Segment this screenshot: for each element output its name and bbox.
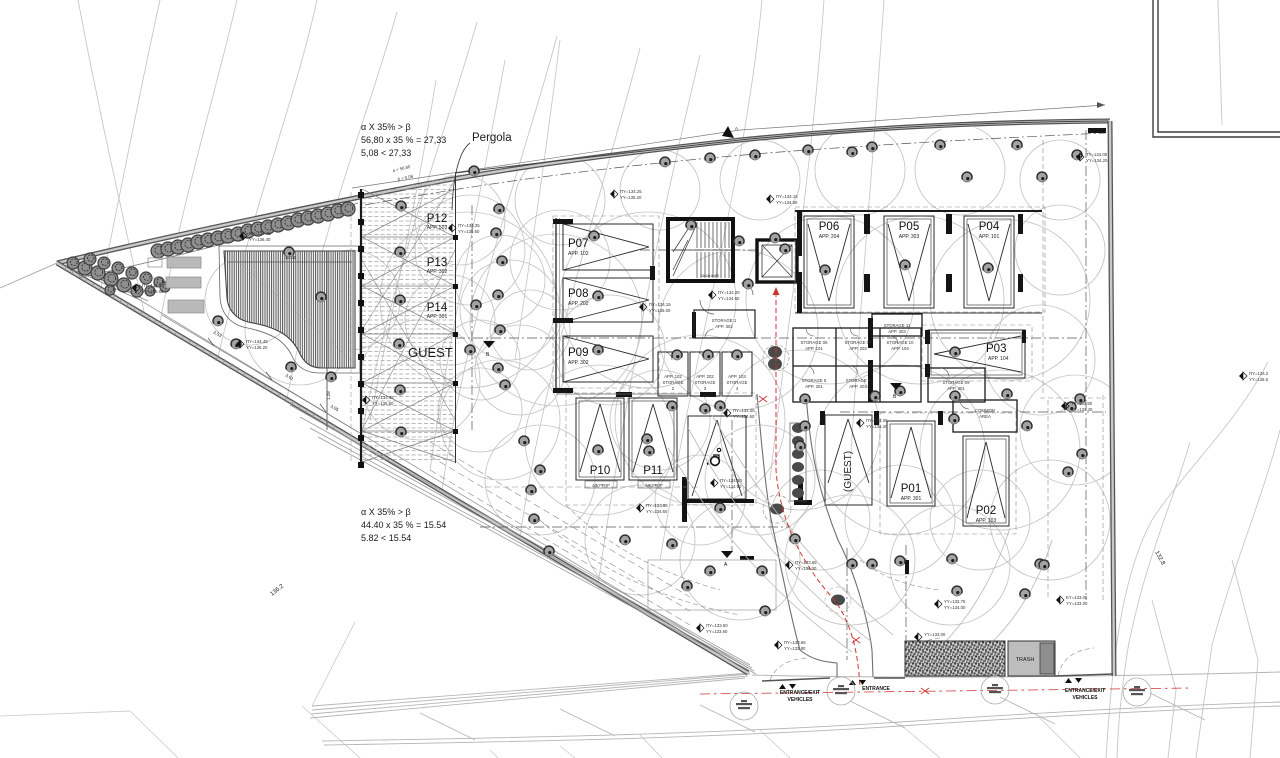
svg-text:ΥΥ=135.6: ΥΥ=135.6 <box>1249 377 1269 382</box>
svg-text:APP. 102: APP. 102 <box>664 374 682 379</box>
svg-text:ΥΥ=136.60: ΥΥ=136.60 <box>142 289 164 294</box>
svg-text:P10: P10 <box>590 465 610 477</box>
svg-text:ΠΥ=134.45: ΠΥ=134.45 <box>142 283 164 288</box>
svg-text:ΠΥ=134.25: ΠΥ=134.25 <box>620 189 642 194</box>
svg-text:APP. 303: APP. 303 <box>888 329 906 334</box>
svg-text:ΠΥ=134.20: ΠΥ=134.20 <box>718 290 740 295</box>
svg-text:ΠΥ=134.35: ΠΥ=134.35 <box>458 223 480 228</box>
svg-text:ΥΥ=134.50: ΥΥ=134.50 <box>720 484 742 489</box>
svg-text:P12: P12 <box>427 213 447 225</box>
svg-text:STORAGE 09: STORAGE 09 <box>943 380 971 385</box>
svg-text:ΥΥ=134.60: ΥΥ=134.60 <box>646 509 668 514</box>
svg-text:STORAGE: STORAGE <box>663 380 684 385</box>
svg-text:APP. 202: APP. 202 <box>568 301 589 307</box>
svg-text:APP. 302: APP. 302 <box>715 324 733 329</box>
svg-text:ΥΥ=133.60: ΥΥ=133.60 <box>706 629 728 634</box>
svg-text:ΠΥ=134.00: ΠΥ=134.00 <box>720 478 742 483</box>
svg-text:ΠΥ=134.15: ΠΥ=134.15 <box>776 194 798 199</box>
svg-text:APP. 201: APP. 201 <box>805 384 823 389</box>
svg-text:13x14x16x30: 13x14x16x30 <box>700 274 719 278</box>
svg-text:44.40 x 35 % = 15.54: 44.40 x 35 % = 15.54 <box>361 520 446 530</box>
svg-text:ΠΥ=134.05: ΠΥ=134.05 <box>866 418 888 423</box>
svg-text:ΠΥ=134.45: ΠΥ=134.45 <box>372 395 394 400</box>
svg-text:Pergola: Pergola <box>472 132 512 144</box>
svg-text:ΥΥ=134.20: ΥΥ=134.20 <box>866 424 888 429</box>
svg-text:ΥΥ=133.40: ΥΥ=133.40 <box>1071 407 1093 412</box>
svg-text:TRASH: TRASH <box>1016 657 1035 663</box>
svg-text:ΠΥ=134.45: ΠΥ=134.45 <box>246 339 268 344</box>
svg-text:STORAGE: STORAGE <box>695 380 716 385</box>
svg-text:APP. 104: APP. 104 <box>891 346 909 351</box>
svg-text:APP. 101: APP. 101 <box>805 346 823 351</box>
svg-text:APP. 302: APP. 302 <box>568 360 589 366</box>
svg-text:ΥΥ=135.00: ΥΥ=135.00 <box>649 308 671 313</box>
svg-text:P04: P04 <box>979 221 1000 233</box>
svg-text:P05: P05 <box>899 221 919 233</box>
svg-text:APP. 204: APP. 204 <box>819 234 840 240</box>
svg-text:STORAGE 1: STORAGE 1 <box>712 318 737 323</box>
svg-text:APP. 102: APP. 102 <box>568 251 589 257</box>
svg-text:APP. 202: APP. 202 <box>696 374 714 379</box>
svg-text:ΤΥ=134.05: ΤΥ=134.05 <box>1086 152 1108 157</box>
svg-text:P07: P07 <box>568 238 588 250</box>
svg-text:5.82 < 15.54: 5.82 < 15.54 <box>361 533 411 543</box>
svg-text:ΠΥ=134.05: ΠΥ=134.05 <box>733 408 755 413</box>
svg-text:STORAGE 06: STORAGE 06 <box>801 340 829 345</box>
svg-text:APP. 203: APP. 203 <box>849 346 867 351</box>
svg-text:ΥΥ=134.60: ΥΥ=134.60 <box>733 414 755 419</box>
svg-text:P01: P01 <box>901 483 921 495</box>
svg-text:ENTRANCE/EXIT: ENTRANCE/EXIT <box>1065 688 1105 694</box>
svg-text:APP. 503: APP. 503 <box>427 225 448 231</box>
svg-text:ΥΥ=133.80: ΥΥ=133.80 <box>784 646 806 651</box>
svg-text:ΥΥ=135.20: ΥΥ=135.20 <box>620 195 642 200</box>
svg-text:ΠΥ=134.45: ΠΥ=134.45 <box>249 231 271 236</box>
svg-text:APP. 103: APP. 103 <box>976 518 997 524</box>
svg-text:5,08 < 27,33: 5,08 < 27,33 <box>361 148 411 158</box>
svg-text:P14: P14 <box>427 302 448 314</box>
svg-text:ΥΥ=134.60: ΥΥ=134.60 <box>718 296 740 301</box>
svg-text:P08: P08 <box>568 288 588 300</box>
svg-text:P09: P09 <box>568 347 588 359</box>
svg-text:ΠΥ=134.2: ΠΥ=134.2 <box>1249 371 1269 376</box>
svg-text:56,80 x 35 % = 27,33: 56,80 x 35 % = 27,33 <box>361 135 446 145</box>
svg-text:ΠΥ=134.15: ΠΥ=134.15 <box>649 302 671 307</box>
svg-text:A: A <box>735 126 738 131</box>
svg-text:APP. 203: APP. 203 <box>849 384 867 389</box>
svg-text:P02: P02 <box>976 505 996 517</box>
svg-text:ΥΥ=133.75: ΥΥ=133.75 <box>944 599 966 604</box>
svg-text:α X 35% > β: α X 35% > β <box>361 122 411 132</box>
svg-text:ΥΥ=134.00: ΥΥ=134.00 <box>944 605 966 610</box>
svg-text:APP. 301: APP. 301 <box>947 386 965 391</box>
svg-text:P06: P06 <box>819 221 839 233</box>
svg-text:ΕΥ=133.05: ΕΥ=133.05 <box>1066 595 1088 600</box>
svg-text:ΤΥ=133.80: ΤΥ=133.80 <box>1071 401 1093 406</box>
svg-text:α X 35% > β: α X 35% > β <box>361 507 411 517</box>
svg-text:P13: P13 <box>427 257 447 269</box>
svg-text:P03: P03 <box>986 343 1006 355</box>
svg-text:APP. 302: APP. 302 <box>427 269 448 275</box>
svg-text:ΥΥ=136.20: ΥΥ=136.20 <box>246 345 268 350</box>
svg-text:ΥΥ=134.20: ΥΥ=134.20 <box>1086 158 1108 163</box>
svg-text:ENTRANCE: ENTRANCE <box>862 686 890 692</box>
svg-text:ΥΥ=133.00: ΥΥ=133.00 <box>924 632 946 637</box>
svg-text:ΥΥ=136.40: ΥΥ=136.40 <box>249 237 271 242</box>
svg-text:APP. 301: APP. 301 <box>901 496 922 502</box>
svg-text:ΥΥ=134.00: ΥΥ=134.00 <box>795 566 817 571</box>
svg-text:ΥΥ=135.60: ΥΥ=135.60 <box>458 229 480 234</box>
svg-text:STORAGE 11: STORAGE 11 <box>884 323 911 328</box>
svg-text:APP. 101: APP. 101 <box>979 234 1000 240</box>
svg-text:P11: P11 <box>643 465 663 477</box>
svg-text:(GUEST): (GUEST) <box>843 451 854 492</box>
svg-text:ENTRANCE/EXIT: ENTRANCE/EXIT <box>780 690 820 696</box>
svg-text:STORAGE 5: STORAGE 5 <box>802 378 827 383</box>
svg-text:ΠΥ=133.65: ΠΥ=133.65 <box>784 640 806 645</box>
svg-text:STORAGE: STORAGE <box>727 380 748 385</box>
svg-text:ΠΥ=133.60: ΠΥ=133.60 <box>706 623 728 628</box>
svg-text:APP. 104: APP. 104 <box>988 356 1009 362</box>
svg-text:ΥΥ=135.60: ΥΥ=135.60 <box>372 401 394 406</box>
svg-text:APP. 303: APP. 303 <box>899 234 920 240</box>
svg-text:VEHICLES: VEHICLES <box>787 697 813 703</box>
svg-text:COMMON: COMMON <box>975 408 995 413</box>
svg-text:ΥΥ=133.00: ΥΥ=133.00 <box>1066 601 1088 606</box>
svg-text:1,28: 1,28 <box>326 391 331 400</box>
svg-text:VEHICLES: VEHICLES <box>1072 695 1098 701</box>
svg-text:GUEST: GUEST <box>408 345 453 360</box>
svg-text:APP. 301: APP. 301 <box>427 314 448 320</box>
svg-text:ΠΥ=133.95: ΠΥ=133.95 <box>646 503 668 508</box>
svg-text:ΠΥ=133.65: ΠΥ=133.65 <box>795 560 817 565</box>
svg-text:ΥΥ=134.80: ΥΥ=134.80 <box>776 200 798 205</box>
svg-text:APP. 103: APP. 103 <box>728 374 746 379</box>
svg-text:STORAGE 8: STORAGE 8 <box>846 378 871 383</box>
svg-text:AREA: AREA <box>979 414 991 419</box>
svg-text:STORAGE 10: STORAGE 10 <box>887 340 915 345</box>
svg-text:STORAGE 07: STORAGE 07 <box>845 340 873 345</box>
